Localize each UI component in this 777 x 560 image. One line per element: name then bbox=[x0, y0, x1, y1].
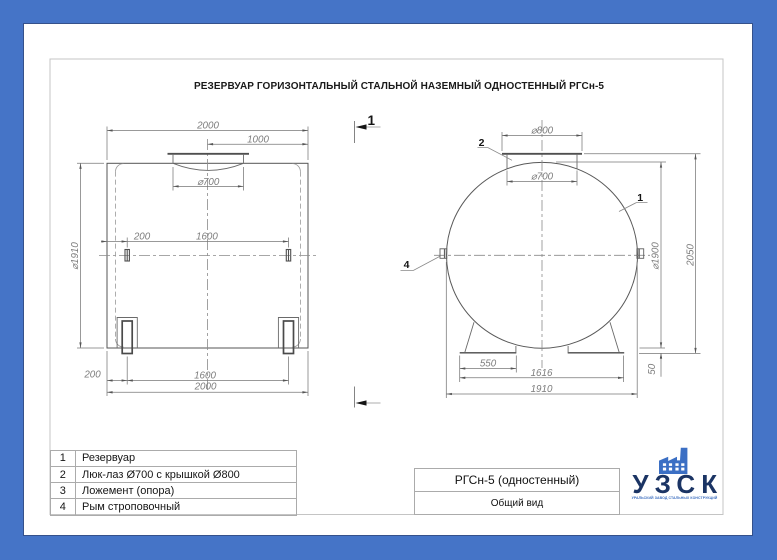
svg-text:550: 550 bbox=[480, 359, 497, 370]
svg-text:⌀800: ⌀800 bbox=[531, 126, 554, 137]
svg-text:200: 200 bbox=[133, 231, 151, 242]
svg-text:1600: 1600 bbox=[196, 231, 218, 242]
svg-text:⌀700: ⌀700 bbox=[197, 177, 220, 188]
svg-text:4: 4 bbox=[404, 259, 410, 271]
svg-text:1: 1 bbox=[368, 113, 376, 128]
svg-text:⌀700: ⌀700 bbox=[531, 172, 554, 183]
svg-text:1616: 1616 bbox=[531, 368, 553, 379]
svg-text:2000: 2000 bbox=[194, 382, 217, 393]
svg-text:1600: 1600 bbox=[194, 370, 216, 381]
svg-text:2000: 2000 bbox=[196, 120, 219, 131]
svg-text:⌀1910: ⌀1910 bbox=[70, 242, 81, 270]
svg-text:200: 200 bbox=[83, 369, 101, 380]
svg-text:2: 2 bbox=[479, 137, 485, 149]
svg-text:50: 50 bbox=[647, 363, 658, 374]
svg-text:1: 1 bbox=[637, 192, 643, 204]
svg-text:1000: 1000 bbox=[247, 134, 269, 145]
svg-text:1910: 1910 bbox=[531, 384, 553, 395]
svg-text:⌀1900: ⌀1900 bbox=[651, 242, 662, 270]
svg-text:2050: 2050 bbox=[686, 244, 697, 267]
